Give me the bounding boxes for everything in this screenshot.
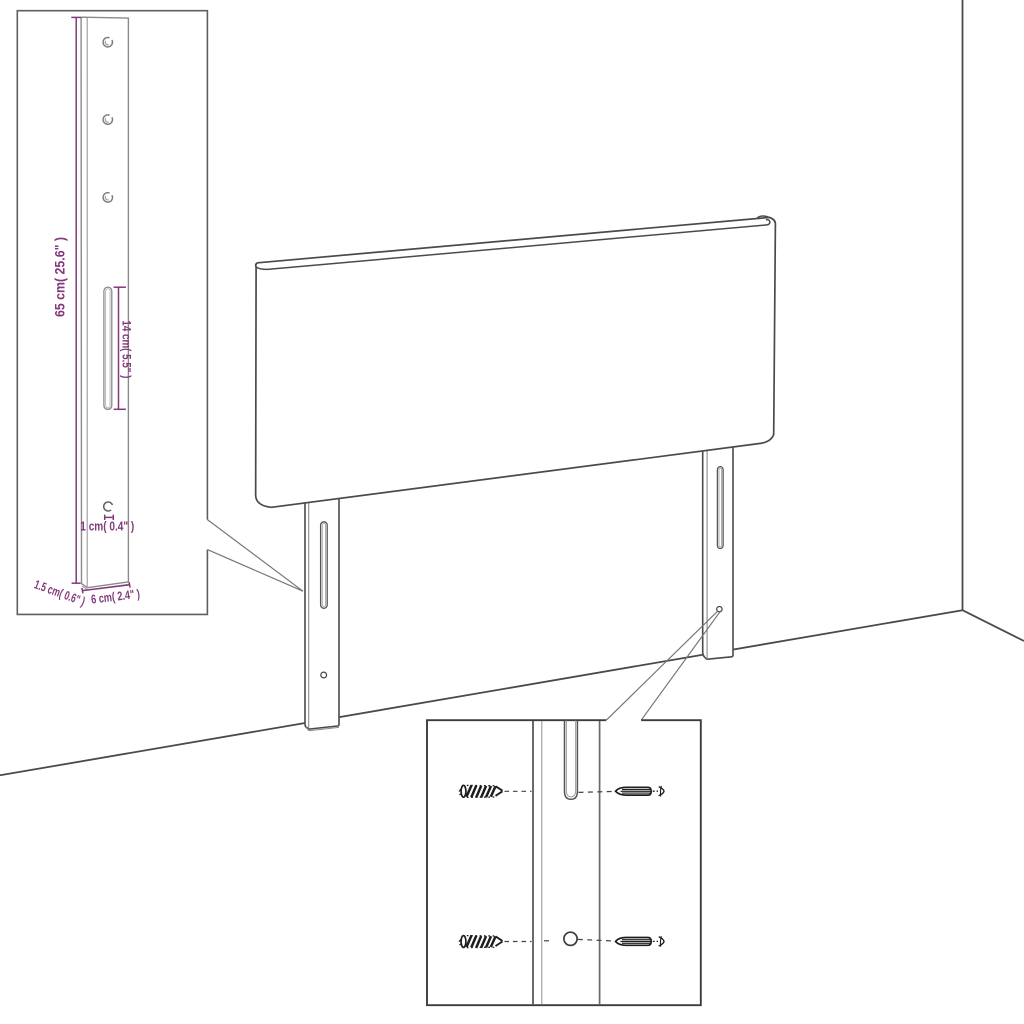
svg-text:65 cm( 25.6" ): 65 cm( 25.6" ) <box>53 237 68 317</box>
svg-text:14 cm( 5.5" ): 14 cm( 5.5" ) <box>120 320 134 378</box>
svg-text:1 cm( 0.4" ): 1 cm( 0.4" ) <box>80 520 134 534</box>
